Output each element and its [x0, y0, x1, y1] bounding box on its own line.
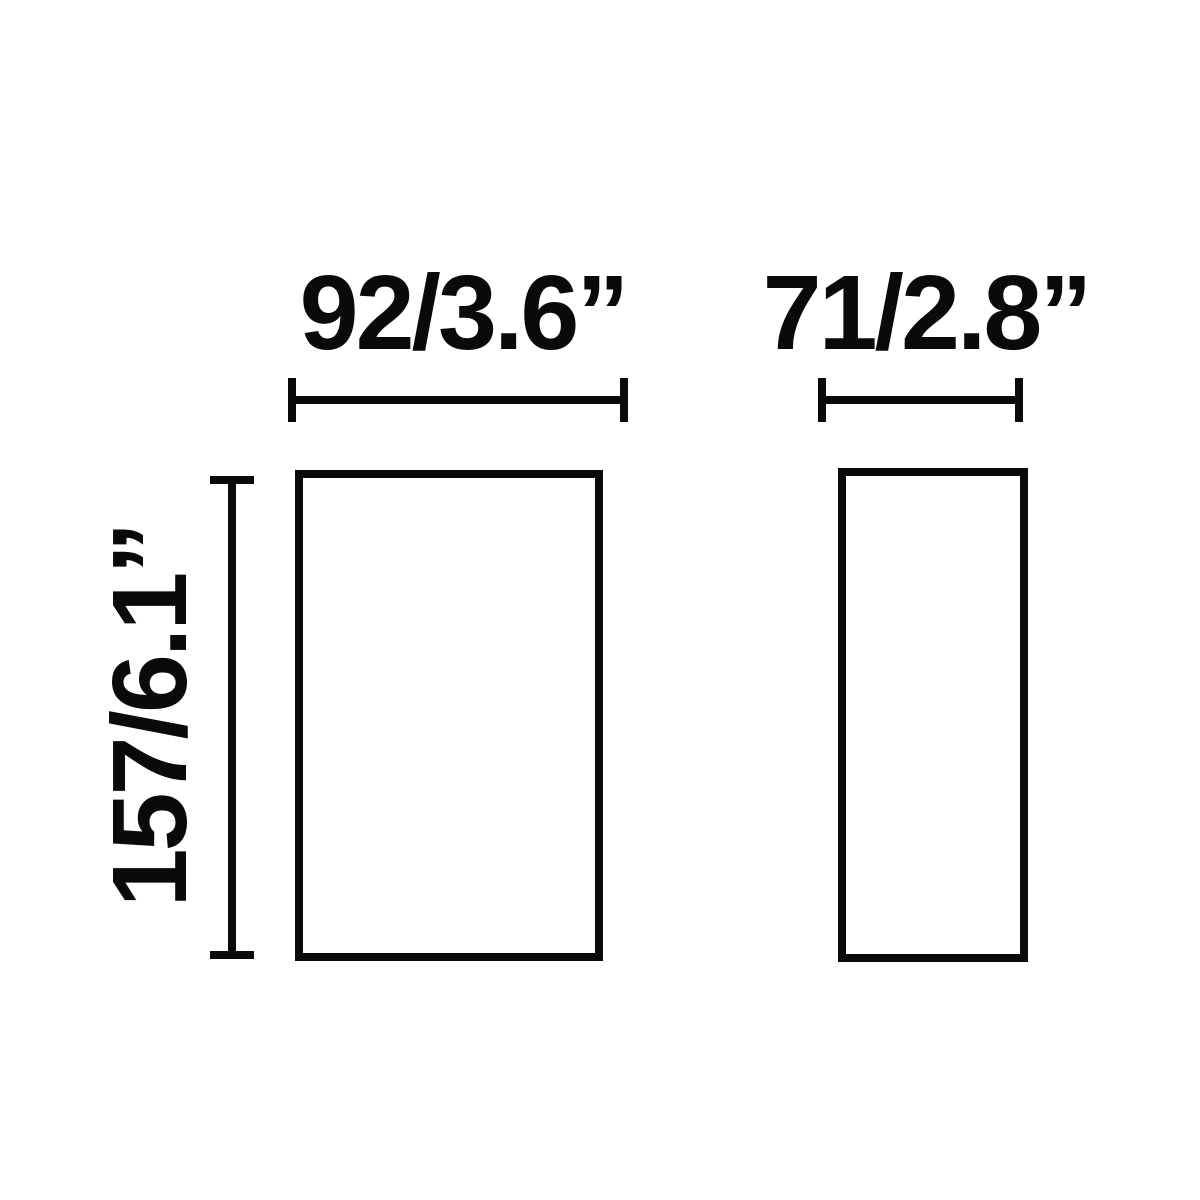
dimension-tick: [1015, 378, 1023, 422]
dimension-tick: [620, 378, 628, 422]
dimension-bar: [818, 396, 1023, 404]
dimension-bar: [228, 476, 236, 959]
front-width-dimension-line: [288, 378, 628, 422]
height-label: 157/6.1”: [97, 525, 203, 908]
front-view-rectangle: [295, 470, 603, 961]
side-width-dimension-line: [818, 378, 1023, 422]
side-view-rectangle: [838, 468, 1028, 962]
height-dimension-line: [210, 476, 254, 959]
side-width-label: 71/2.8”: [763, 260, 1090, 366]
dimension-diagram: 92/3.6” 71/2.8” 157/6.1”: [0, 0, 1200, 1200]
front-width-label: 92/3.6”: [300, 260, 627, 366]
dimension-tick: [210, 951, 254, 959]
dimension-bar: [288, 396, 628, 404]
